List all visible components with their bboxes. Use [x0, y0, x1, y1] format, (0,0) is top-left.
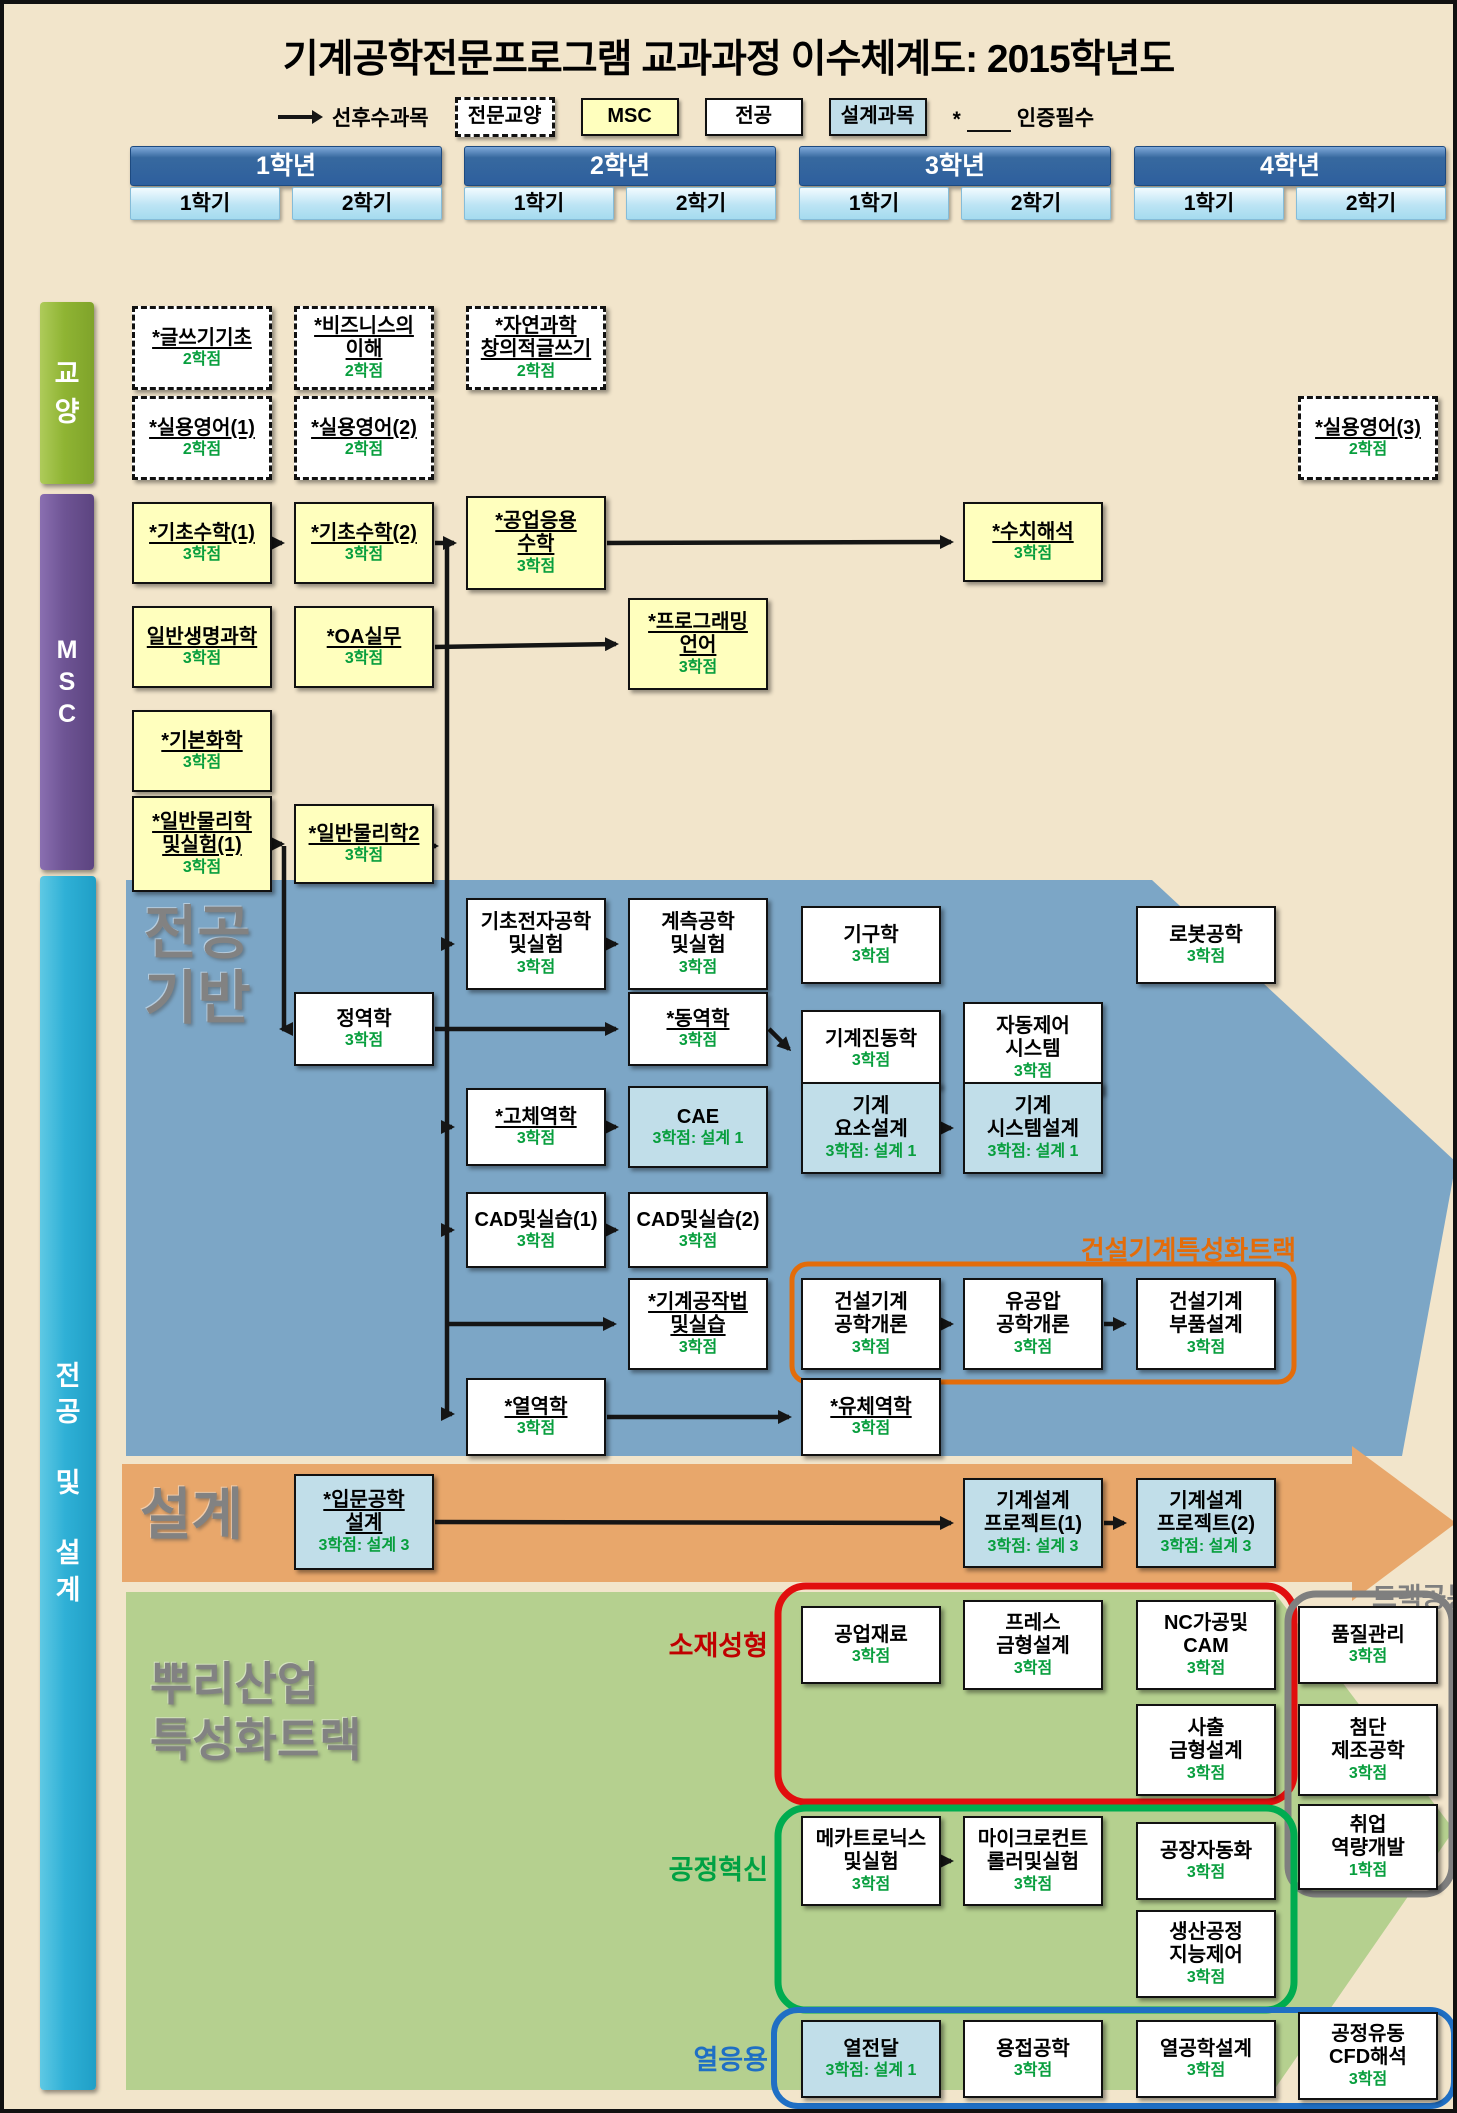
course-name-line: *실용영어(1)	[149, 417, 255, 440]
course-box-proj1: 기계설계프로젝트(1)3학점: 설계 3	[963, 1478, 1103, 1568]
course-name-line: 금형설계	[996, 1635, 1070, 1658]
course-name-line: *글쓰기기초	[152, 327, 252, 350]
course-name-line: 기계설계	[1157, 1490, 1255, 1513]
course-name-line: *기계공작법	[648, 1291, 748, 1314]
course-credit: 3학점	[852, 1051, 890, 1070]
course-credit: 3학점	[517, 557, 555, 576]
course-name: 일반생명과학	[147, 626, 257, 649]
course-box-eng3: *실용영어(3)2학점	[1298, 396, 1438, 480]
semester-1-2: 2학기	[292, 187, 442, 220]
course-name: *글쓰기기초	[152, 327, 252, 350]
course-name-line: CAD및실습(2)	[637, 1209, 760, 1232]
year-header-3: 3학년	[799, 146, 1111, 186]
course-name-line: 금형설계	[1169, 1740, 1243, 1763]
course-name: 메카트로닉스및실험	[816, 1828, 926, 1874]
course-box-meas: 계측공학및실험3학점	[628, 898, 768, 990]
course-box-prog: *프로그래밍언어3학점	[628, 598, 768, 690]
course-box-math1: *기초수학(1)3학점	[132, 502, 272, 584]
course-name-line: 정역학	[336, 1008, 391, 1031]
course-name-line: *일반물리학2	[309, 823, 420, 846]
course-name: 기계설계프로젝트(2)	[1157, 1490, 1255, 1536]
prerequisite-arrow-engmath-numan	[607, 542, 951, 543]
course-name-line: 시스템설계	[987, 1118, 1079, 1141]
course-name-line: 사출	[1169, 1717, 1243, 1740]
course-name-line: 이해	[314, 338, 414, 361]
course-name: *일반물리학2	[309, 823, 420, 846]
course-name: CAD및실습(2)	[637, 1209, 760, 1232]
course-name: *기본화학	[161, 730, 242, 753]
course-box-gs: *글쓰기기초2학점	[132, 306, 272, 390]
course-credit: 3학점	[679, 1338, 717, 1357]
course-name-line: 지능제어	[1169, 1944, 1243, 1967]
course-box-vib: 기계진동학3학점	[801, 1010, 941, 1088]
course-name-line: *실용영어(3)	[1315, 417, 1421, 440]
course-name-line: 로봇공학	[1169, 924, 1243, 947]
course-name-line: 설계	[323, 1512, 404, 1535]
course-name: *공업응용수학	[495, 510, 576, 556]
course-name-line: CAE	[677, 1106, 719, 1129]
course-name-line: 취업	[1331, 1814, 1405, 1837]
course-name: 로봇공학	[1169, 924, 1243, 947]
course-credit: 3학점	[852, 1647, 890, 1666]
label-material-forming: 소재성형	[600, 1624, 768, 1663]
course-name-line: *유체역학	[830, 1396, 911, 1419]
course-name: *기초수학(2)	[311, 522, 417, 545]
course-box-oa: *OA실무3학점	[294, 606, 434, 688]
course-name-line: 수학	[495, 533, 576, 556]
course-name-line: 공정유동	[1329, 2023, 1407, 2046]
course-name: 기계시스템설계	[987, 1095, 1079, 1141]
course-box-indmat: 공업재료3학점	[801, 1606, 941, 1684]
course-credit: 2학점	[183, 440, 221, 459]
course-name-line: 마이크로컨트	[978, 1828, 1088, 1851]
course-credit: 2학점	[345, 440, 383, 459]
course-box-fluid: *유체역학3학점	[801, 1378, 941, 1456]
course-name-line: *열역학	[505, 1396, 568, 1419]
course-box-robot: 로봇공학3학점	[1136, 906, 1276, 984]
required-underline	[967, 112, 1011, 132]
course-credit: 3학점	[1014, 1875, 1052, 1894]
legend-major-box: 전공	[705, 98, 803, 136]
sidebar-char: 설	[56, 1539, 81, 1567]
course-credit: 3학점: 설계 1	[826, 2061, 917, 2080]
course-name-line: 공학개론	[834, 1314, 908, 1337]
course-name: 열공학설계	[1160, 2038, 1252, 2061]
course-name: 품질관리	[1331, 1624, 1405, 1647]
course-name: 열전달	[843, 2038, 898, 2061]
region-label-line: 전공	[144, 902, 251, 967]
course-name-line: 및실험(1)	[152, 834, 252, 857]
prerequisite-arrow-introdes-proj1	[435, 1522, 951, 1523]
course-name-line: 프레스	[996, 1612, 1070, 1635]
course-name-line: *자연과학	[481, 315, 591, 338]
course-credit: 3학점	[679, 658, 717, 677]
course-name: *OA실무	[327, 626, 402, 649]
course-box-proj2: 기계설계프로젝트(2)3학점: 설계 3	[1136, 1478, 1276, 1568]
course-name-line: *실용영어(2)	[311, 417, 417, 440]
course-credit: 3학점	[852, 1338, 890, 1357]
course-name-line: *수치해석	[992, 521, 1073, 544]
course-name: 프레스금형설계	[996, 1612, 1070, 1658]
course-box-inject: 사출금형설계3학점	[1136, 1704, 1276, 1796]
course-credit: 3학점	[1187, 1764, 1225, 1783]
course-box-introdes: *입문공학설계3학점: 설계 3	[294, 1474, 434, 1570]
course-name: 기계요소설계	[834, 1095, 908, 1141]
course-name-line: 품질관리	[1331, 1624, 1405, 1647]
sidebar-msc: MSC	[40, 494, 94, 870]
course-box-nccam: NC가공및CAM3학점	[1136, 1600, 1276, 1690]
semester-2-1: 1학기	[464, 187, 614, 220]
course-name-line: 및실험	[816, 1851, 926, 1874]
course-credit: 3학점	[1014, 1659, 1052, 1678]
course-name: *열역학	[505, 1396, 568, 1419]
course-credit: 3학점: 설계 1	[988, 1142, 1079, 1161]
course-credit: 3학점	[517, 1419, 555, 1438]
course-box-bio: 일반생명과학3학점	[132, 606, 272, 688]
course-name-line: 공학개론	[996, 1314, 1070, 1337]
course-credit: 3학점	[1349, 2070, 1387, 2089]
course-name: 공업재료	[834, 1624, 908, 1647]
course-credit: 3학점	[1187, 1968, 1225, 1987]
course-box-mech: 기구학3학점	[801, 906, 941, 984]
course-box-math2: *기초수학(2)3학점	[294, 502, 434, 584]
course-box-engmath: *공업응용수학3학점	[466, 496, 606, 590]
semester-4-2: 2학기	[1296, 187, 1446, 220]
course-box-eng2: *실용영어(2)2학점	[294, 396, 434, 480]
course-name-line: 열전달	[843, 2038, 898, 2061]
course-name: 사출금형설계	[1169, 1717, 1243, 1763]
course-box-nat: *자연과학창의적글쓰기2학점	[466, 306, 606, 390]
sidebar-char: 계	[56, 1576, 81, 1604]
course-name: 생산공정지능제어	[1169, 1921, 1243, 1967]
semester-1-1: 1학기	[130, 187, 280, 220]
course-name-line: 건설기계	[834, 1291, 908, 1314]
year-header-1: 1학년	[130, 146, 442, 186]
course-name-line: 첨단	[1331, 1717, 1405, 1740]
course-box-statics: 정역학3학점	[294, 992, 434, 1066]
course-box-career: 취업역량개발1학점	[1298, 1804, 1438, 1890]
course-name: 건설기계부품설계	[1169, 1291, 1243, 1337]
course-name-line: NC가공및	[1164, 1612, 1248, 1635]
course-name-line: 및실험	[661, 934, 735, 957]
sidebar-char: M	[57, 637, 78, 663]
course-box-macsys: 기계시스템설계3학점: 설계 1	[963, 1082, 1103, 1174]
sidebar-major-and-design: 전공및설계	[40, 876, 96, 2090]
course-box-heat: 열전달3학점: 설계 1	[801, 2020, 941, 2098]
course-box-weld: 용접공학3학점	[963, 2020, 1103, 2098]
course-credit: 2학점	[345, 362, 383, 381]
course-name: 기계설계프로젝트(1)	[984, 1490, 1082, 1536]
course-box-solid: *고체역학3학점	[466, 1088, 606, 1166]
course-credit: 3학점	[345, 1031, 383, 1050]
course-name: *실용영어(3)	[1315, 417, 1421, 440]
course-name-line: 기계	[834, 1095, 908, 1118]
course-name-line: 기계	[987, 1095, 1079, 1118]
course-name-line: *일반물리학	[152, 811, 252, 834]
region-label-major-base: 전공기반	[144, 902, 251, 1032]
legend-prerequisite: 선후수과목	[276, 102, 429, 132]
course-credit: 3학점	[183, 858, 221, 877]
course-box-thermo: *열역학3학점	[466, 1378, 606, 1456]
course-name-line: 요소설계	[834, 1118, 908, 1141]
region-label-line: 기반	[144, 967, 251, 1032]
required-asterisk: *	[953, 108, 961, 132]
course-credit: 2학점	[1349, 440, 1387, 459]
course-name-line: 용접공학	[996, 2038, 1070, 2061]
course-name-line: 언어	[648, 634, 748, 657]
region-label-design: 설계	[140, 1484, 243, 1547]
course-box-numan: *수치해석3학점	[963, 502, 1103, 582]
course-credit: 3학점	[1014, 1062, 1052, 1081]
course-name-line: 기초전자공학	[481, 911, 591, 934]
label-thermal-application: 열응용	[640, 2038, 768, 2077]
course-name-line: 공업재료	[834, 1624, 908, 1647]
sidebar-char: 전	[56, 1362, 81, 1390]
course-name-line: CAM	[1164, 1635, 1248, 1658]
semester-3-2: 2학기	[961, 187, 1111, 220]
semester-2-2: 2학기	[626, 187, 776, 220]
course-credit: 3학점	[517, 1129, 555, 1148]
course-name-line: *OA실무	[327, 626, 402, 649]
course-name: 공정유동CFD해석	[1329, 2023, 1407, 2069]
course-box-factauto: 공장자동화3학점	[1136, 1822, 1276, 1900]
course-name-line: *기본화학	[161, 730, 242, 753]
region-label-line: 설계	[140, 1484, 243, 1547]
course-name: *동역학	[667, 1008, 730, 1031]
course-credit: 3학점: 설계 3	[1161, 1537, 1252, 1556]
course-name: *기계공작법및실습	[648, 1291, 748, 1337]
course-credit: 3학점	[1014, 544, 1052, 563]
course-name: 마이크로컨트롤러및실험	[978, 1828, 1088, 1874]
course-credit: 3학점	[852, 947, 890, 966]
prerequisite-arrow-oa-prog	[435, 644, 616, 647]
course-credit: 3학점: 설계 1	[826, 1142, 917, 1161]
course-name-line: 기계설계	[984, 1490, 1082, 1513]
course-credit: 3학점	[183, 545, 221, 564]
course-name-line: *고체역학	[495, 1106, 576, 1129]
sidebar-char: S	[59, 669, 76, 695]
course-name-line: *기초수학(2)	[311, 522, 417, 545]
course-name: 기구학	[843, 924, 898, 947]
course-name-line: 공장자동화	[1160, 1840, 1252, 1863]
course-box-mecha: 메카트로닉스및실험3학점	[801, 1816, 941, 1906]
region-label-line: 뿌리산업	[150, 1656, 362, 1712]
course-name-line: 프로젝트(1)	[984, 1513, 1082, 1536]
course-credit: 3학점	[1349, 1764, 1387, 1783]
course-box-dyn: *동역학3학점	[628, 992, 768, 1066]
course-credit: 3학점	[1014, 1338, 1052, 1357]
course-name: 자동제어시스템	[996, 1015, 1070, 1061]
course-box-hydr: 유공압공학개론3학점	[963, 1278, 1103, 1370]
region-label-root-industry: 뿌리산업특성화트랙	[150, 1656, 362, 1768]
course-credit: 3학점	[852, 1875, 890, 1894]
sidebar-char: 교	[55, 360, 80, 388]
course-name: *수치해석	[992, 521, 1073, 544]
course-name-line: 제조공학	[1331, 1740, 1405, 1763]
course-name: CAD및실습(1)	[475, 1209, 598, 1232]
course-name: NC가공및CAM	[1164, 1612, 1248, 1658]
legend-design-box: 설계과목	[829, 98, 927, 136]
course-name: 유공압공학개론	[996, 1291, 1070, 1337]
course-name-line: 프로젝트(2)	[1157, 1513, 1255, 1536]
course-name-line: CFD해석	[1329, 2046, 1407, 2069]
course-name: *실용영어(2)	[311, 417, 417, 440]
course-name-line: 및실험	[481, 934, 591, 957]
course-box-eng1: *실용영어(1)2학점	[132, 396, 272, 480]
legend-required-label: 인증필수	[1017, 102, 1094, 132]
course-name: *기초수학(1)	[149, 522, 255, 545]
course-box-press: 프레스금형설계3학점	[963, 1600, 1103, 1690]
course-name: *실용영어(1)	[149, 417, 255, 440]
course-box-conint: 건설기계공학개론3학점	[801, 1278, 941, 1370]
course-name-line: *동역학	[667, 1008, 730, 1031]
course-box-quality: 품질관리3학점	[1298, 1606, 1438, 1684]
course-credit: 3학점	[1187, 1338, 1225, 1357]
course-name-line: 건설기계	[1169, 1291, 1243, 1314]
course-name-line: 유공압	[996, 1291, 1070, 1314]
course-credit: 3학점	[183, 649, 221, 668]
course-name: 기계진동학	[825, 1028, 917, 1051]
course-credit: 3학점	[183, 753, 221, 772]
course-box-cfd: 공정유동CFD해석3학점	[1298, 2012, 1438, 2100]
course-name: 공장자동화	[1160, 1840, 1252, 1863]
course-box-biz: *비즈니스의이해2학점	[294, 306, 434, 390]
course-box-conpart: 건설기계부품설계3학점	[1136, 1278, 1276, 1370]
course-name: *일반물리학및실험(1)	[152, 811, 252, 857]
course-name-line: 역량개발	[1331, 1837, 1405, 1860]
sidebar-char: C	[58, 701, 76, 727]
course-box-phys2: *일반물리학23학점	[294, 804, 434, 884]
legend: 선후수과목 전문교양 MSC 전공 설계과목 * 인증필수	[276, 98, 1094, 136]
course-credit: 3학점	[1187, 1863, 1225, 1882]
course-credit: 2학점	[517, 362, 555, 381]
course-name: *유체역학	[830, 1396, 911, 1419]
legend-prerequisite-label: 선후수과목	[332, 102, 429, 132]
page-title: 기계공학전문프로그램 교과과정 이수체계도: 2015학년도	[4, 28, 1453, 84]
course-credit: 3학점	[852, 1419, 890, 1438]
course-name: 계측공학및실험	[661, 911, 735, 957]
curriculum-flowchart: 기계공학전문프로그램 교과과정 이수체계도: 2015학년도 선후수과목 전문교…	[0, 0, 1457, 2113]
course-name: *프로그래밍언어	[648, 611, 748, 657]
sidebar-char: 공	[56, 1398, 81, 1426]
course-credit: 1학점	[1349, 1861, 1387, 1880]
course-box-prodctl: 생산공정지능제어3학점	[1136, 1910, 1276, 1998]
course-credit: 3학점	[345, 649, 383, 668]
course-credit: 3학점	[1349, 1647, 1387, 1666]
course-name: 용접공학	[996, 2038, 1070, 2061]
course-credit: 3학점	[345, 846, 383, 865]
course-credit: 3학점: 설계 1	[653, 1129, 744, 1148]
course-name: 기초전자공학및실험	[481, 911, 591, 957]
course-credit: 3학점	[1187, 1659, 1225, 1678]
course-name-line: 생산공정	[1169, 1921, 1243, 1944]
course-credit: 3학점	[1187, 947, 1225, 966]
course-box-micro: 마이크로컨트롤러및실험3학점	[963, 1816, 1103, 1906]
semester-3-1: 1학기	[799, 187, 949, 220]
physics-to-statics-arrow	[282, 846, 284, 1029]
legend-required: * 인증필수	[953, 102, 1094, 132]
course-name-line: *프로그래밍	[648, 611, 748, 634]
course-name: 취업역량개발	[1331, 1814, 1405, 1860]
course-credit: 2학점	[183, 350, 221, 369]
legend-liberal-box: 전문교양	[455, 97, 555, 137]
year-header-2: 2학년	[464, 146, 776, 186]
course-name: *고체역학	[495, 1106, 576, 1129]
course-name-line: *기초수학(1)	[149, 522, 255, 545]
course-credit: 3학점	[679, 1031, 717, 1050]
course-name-line: 자동제어	[996, 1015, 1070, 1038]
course-credit: 3학점: 설계 3	[319, 1536, 410, 1555]
course-name-line: CAD및실습(1)	[475, 1209, 598, 1232]
course-name: *자연과학창의적글쓰기	[481, 315, 591, 361]
legend-msc-box: MSC	[581, 98, 679, 136]
course-box-machel: 기계요소설계3학점: 설계 1	[801, 1082, 941, 1174]
course-name-line: 열공학설계	[1160, 2038, 1252, 2061]
course-name-line: *비즈니스의	[314, 315, 414, 338]
course-credit: 3학점	[679, 958, 717, 977]
prerequisite-arrow-icon	[276, 109, 324, 125]
course-name: CAE	[677, 1106, 719, 1129]
course-box-cad1: CAD및실습(1)3학점	[466, 1192, 606, 1268]
course-name-line: 및실습	[648, 1314, 748, 1337]
course-name-line: 기구학	[843, 924, 898, 947]
course-box-manuf: *기계공작법및실습3학점	[628, 1278, 768, 1370]
course-credit: 3학점: 설계 3	[988, 1537, 1079, 1556]
course-name-line: 일반생명과학	[147, 626, 257, 649]
year-header-4: 4학년	[1134, 146, 1446, 186]
course-box-advman: 첨단제조공학3학점	[1298, 1704, 1438, 1796]
course-box-elec: 기초전자공학및실험3학점	[466, 898, 606, 990]
course-credit: 3학점	[345, 545, 383, 564]
course-name: 첨단제조공학	[1331, 1717, 1405, 1763]
course-name: 건설기계공학개론	[834, 1291, 908, 1337]
region-label-line: 특성화트랙	[150, 1712, 362, 1768]
semester-4-1: 1학기	[1134, 187, 1284, 220]
sidebar-char: 양	[55, 398, 80, 426]
course-credit: 3학점	[679, 1232, 717, 1251]
course-name: 정역학	[336, 1008, 391, 1031]
course-name-line: 롤러및실험	[978, 1851, 1088, 1874]
course-name: *입문공학설계	[323, 1489, 404, 1535]
course-credit: 3학점	[1187, 2061, 1225, 2080]
course-name-line: 창의적글쓰기	[481, 338, 591, 361]
course-name-line: *공업응용	[495, 510, 576, 533]
course-credit: 3학점	[517, 1232, 555, 1251]
course-name-line: 계측공학	[661, 911, 735, 934]
course-name-line: 기계진동학	[825, 1028, 917, 1051]
course-credit: 3학점	[1014, 2061, 1052, 2080]
course-name-line: 부품설계	[1169, 1314, 1243, 1337]
course-name-line: 메카트로닉스	[816, 1828, 926, 1851]
course-box-chem: *기본화학3학점	[132, 710, 272, 792]
course-name-line: *입문공학	[323, 1489, 404, 1512]
course-name: *비즈니스의이해	[314, 315, 414, 361]
label-process-innovation: 공정혁신	[600, 1848, 768, 1887]
course-box-cae: CAE3학점: 설계 1	[628, 1086, 768, 1168]
label-construction-track: 건설기계특성화트랙	[1024, 1230, 1296, 1267]
sidebar-liberal-arts: 교양	[40, 302, 94, 484]
course-credit: 3학점	[517, 958, 555, 977]
course-box-cad2: CAD및실습(2)3학점	[628, 1192, 768, 1268]
course-name-line: 시스템	[996, 1038, 1070, 1061]
course-box-thermdes: 열공학설계3학점	[1136, 2020, 1276, 2098]
sidebar-char: 및	[56, 1469, 81, 1497]
course-box-auto: 자동제어시스템3학점	[963, 1002, 1103, 1094]
course-box-phys1: *일반물리학및실험(1)3학점	[132, 796, 272, 892]
